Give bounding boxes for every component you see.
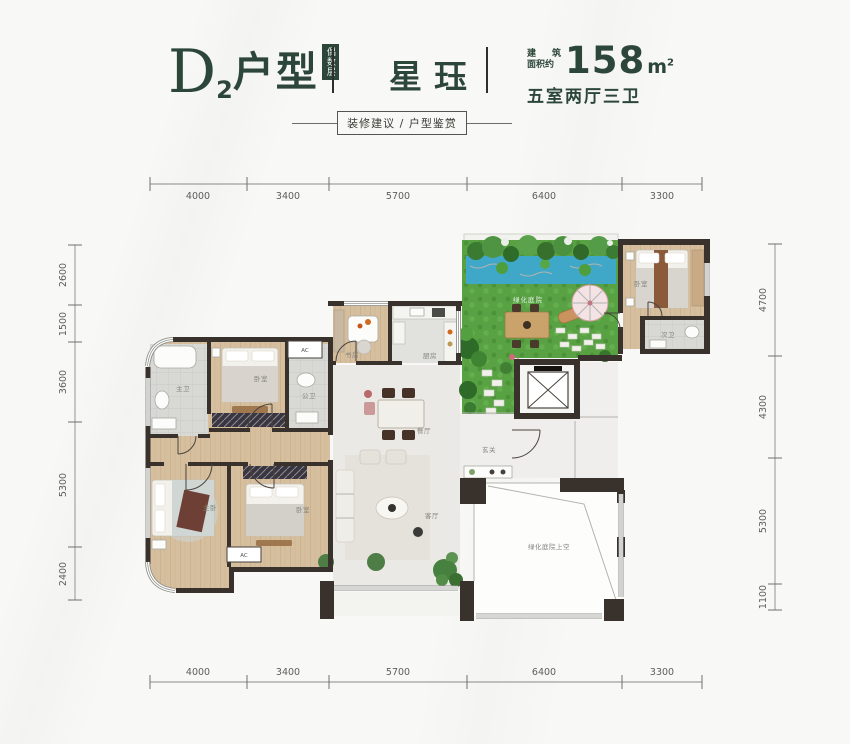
toilet-icon: [685, 326, 699, 338]
floor-corridor: [580, 362, 618, 413]
label-kitchen: 厨房: [423, 351, 437, 360]
dim-top-5: 3300: [650, 191, 674, 202]
bedroom-top-furniture: [212, 348, 288, 427]
accent-chair: [364, 402, 375, 415]
label-master-bedroom: 主卧: [203, 503, 217, 512]
dim-bottom-4: 6400: [532, 667, 556, 678]
desk-chair: [357, 340, 371, 354]
vanity: [650, 340, 666, 348]
toilet-icon: [155, 391, 169, 409]
vanity: [152, 418, 176, 429]
toilet-icon: [297, 373, 315, 387]
bed-bench: [256, 540, 292, 546]
label-master-bath: 主卫: [176, 384, 190, 393]
elevator: [528, 366, 568, 408]
dimension-top: 4000 3400 5700 6400 3300: [150, 177, 702, 202]
floor-balcony: [334, 592, 460, 616]
desk: [348, 316, 378, 342]
nightstand: [626, 298, 634, 306]
plant-icon: [367, 553, 385, 571]
bathtub-icon: [154, 346, 196, 368]
armchair: [386, 450, 406, 464]
armchair: [360, 450, 380, 464]
dim-top-2: 3400: [276, 191, 300, 202]
entry-furniture: [464, 466, 512, 478]
label-garden: 绿化庭院: [513, 295, 543, 304]
dim-bottom-2: 3400: [276, 667, 300, 678]
label-study: 书房: [345, 350, 359, 359]
label-bedroom-right: 卧室: [634, 279, 648, 288]
vanity: [296, 412, 318, 423]
sofa: [336, 470, 354, 542]
dim-left-1: 2600: [58, 263, 69, 287]
dim-right-3: 5300: [758, 509, 769, 533]
pool: [466, 256, 616, 284]
fridge-icon: [393, 322, 405, 344]
label-foyer: 玄关: [482, 445, 496, 454]
label-bedroom-top: 卧室: [254, 374, 268, 383]
bedroom-right-furniture: [626, 250, 704, 308]
label-public-bath: 公卫: [302, 392, 316, 400]
sink-icon: [410, 308, 424, 316]
dimension-right: 4700 4300 5300 1100: [758, 244, 782, 610]
stove-icon: [432, 308, 445, 317]
dining-table: [378, 400, 424, 428]
label-bedroom-bottom: 卧室: [296, 505, 310, 514]
bed-bench: [232, 406, 268, 413]
dimension-bottom: 4000 3400 5700 6400 3300: [150, 667, 702, 689]
ac-label-bottom: AC: [240, 553, 248, 559]
dim-left-2: 1500: [58, 312, 69, 336]
elevator-door: [534, 366, 562, 371]
dim-top-4: 6400: [532, 191, 556, 202]
dim-left-4: 5300: [58, 473, 69, 497]
dresser: [152, 540, 166, 549]
label-living: 客厅: [425, 511, 439, 520]
floorplan-drawing: 4000 3400 5700 6400 3300 4000 3400 5700 …: [0, 0, 850, 744]
side-table: [413, 527, 423, 537]
dim-left-5: 2400: [58, 562, 69, 586]
dim-top-3: 5700: [386, 191, 410, 202]
label-dining: 餐厅: [417, 426, 431, 435]
dim-bottom-5: 3300: [650, 667, 674, 678]
ac-label-top: AC: [301, 348, 309, 354]
dim-right-4: 1100: [758, 585, 769, 609]
dim-left-3: 3600: [58, 370, 69, 394]
wardrobe-bottom: [243, 466, 307, 479]
label-void-area: 绿化庭院上空: [528, 542, 570, 551]
dim-bottom-1: 4000: [186, 667, 210, 678]
floorplan-page: D2户型偶数层 星珏 建筑 面积约 158 m2 五室两厅三卫 装修建议 / 户…: [0, 0, 850, 744]
dim-right-1: 4700: [758, 288, 769, 312]
wardrobe-right: [692, 250, 704, 306]
wardrobe-top: [212, 413, 288, 427]
dim-top-1: 4000: [186, 191, 210, 202]
dimension-left: 2600 1500 3600 5300 2400: [58, 245, 82, 600]
dim-bottom-3: 5700: [386, 667, 410, 678]
kitchen-counter: [393, 306, 457, 319]
dim-right-2: 4300: [758, 395, 769, 419]
nightstand: [626, 252, 634, 260]
label-second-bath: 次卫: [661, 330, 675, 339]
nightstand: [212, 348, 220, 357]
